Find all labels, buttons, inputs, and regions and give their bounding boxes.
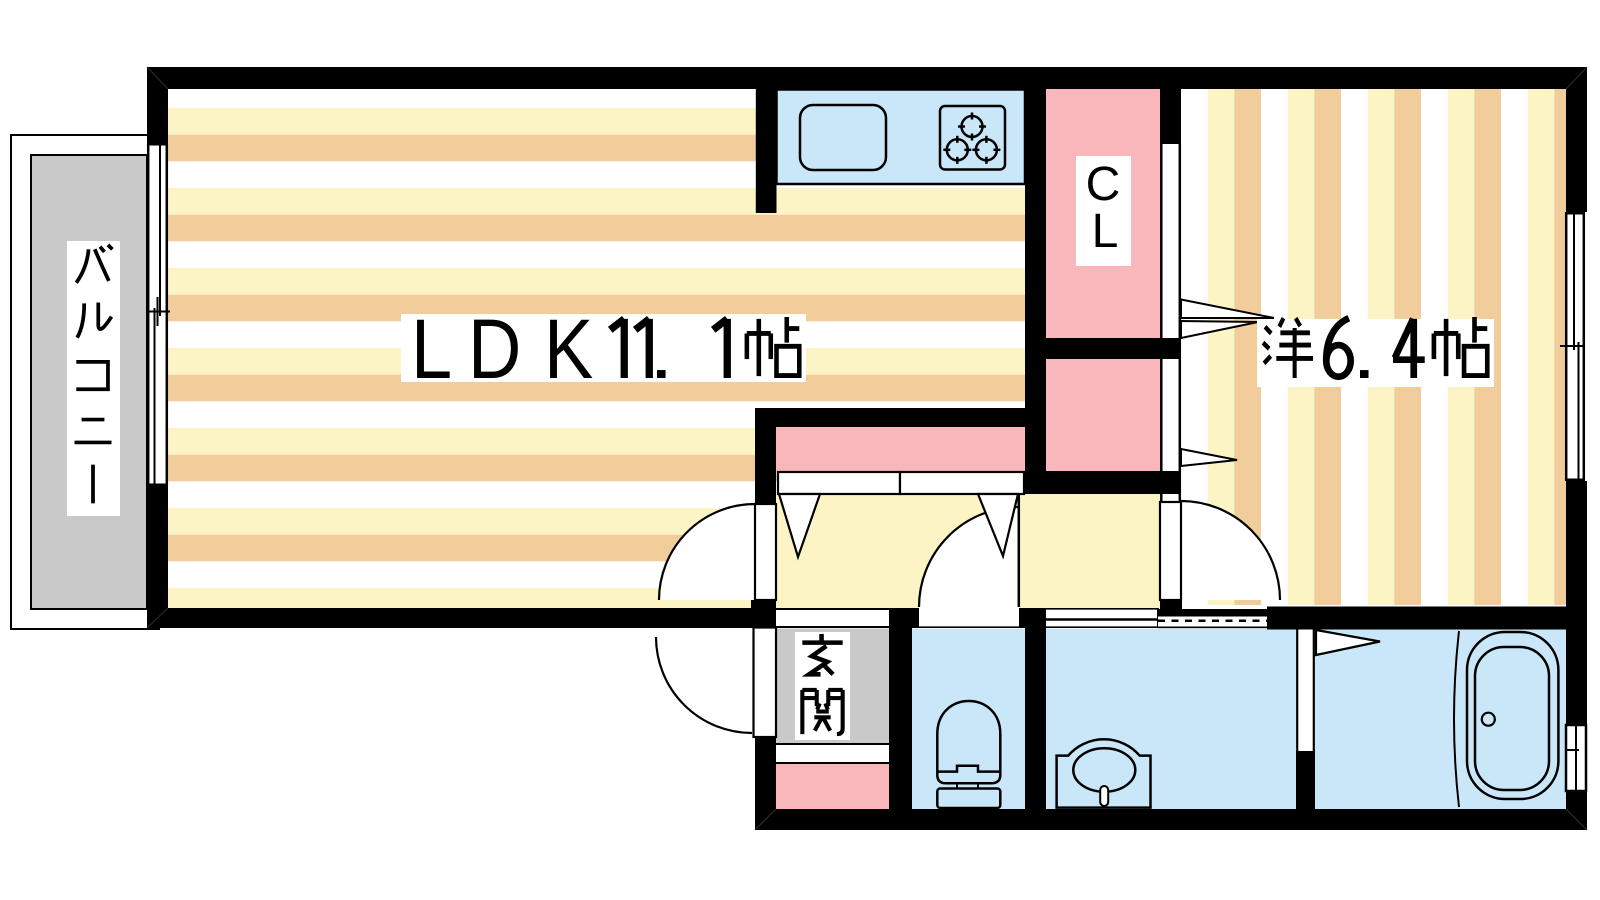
svg-text:L: L [411, 302, 452, 396]
svg-text:L: L [1092, 205, 1119, 258]
svg-text:D: D [468, 302, 521, 396]
svg-text:C: C [1086, 158, 1121, 211]
svg-text:K: K [544, 302, 593, 396]
